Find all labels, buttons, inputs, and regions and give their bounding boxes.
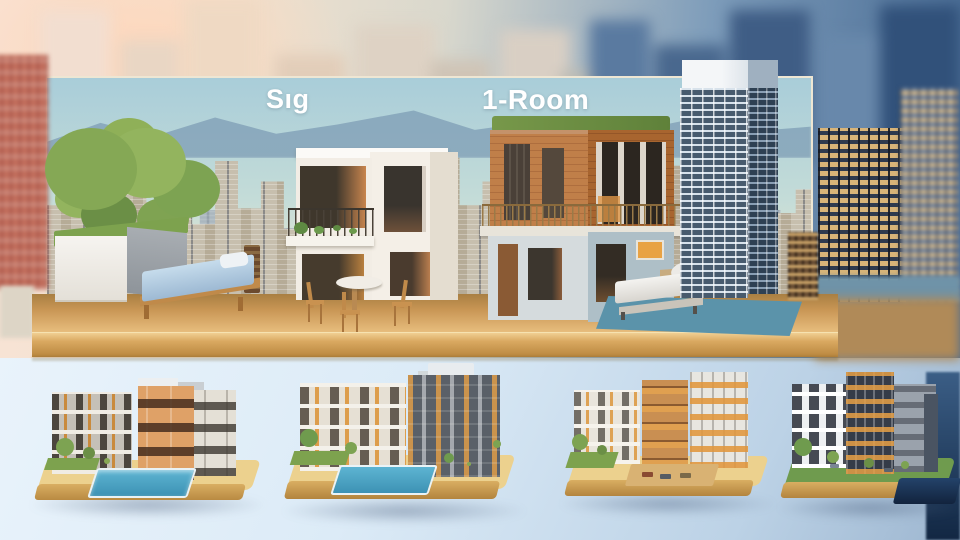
chair-leg	[308, 304, 310, 322]
apartment-model-2	[280, 365, 525, 520]
label-1-room: 1-Room	[482, 84, 589, 116]
lower-window-left	[528, 248, 562, 300]
tower-cap-side	[748, 60, 778, 90]
apartment-model-3	[558, 368, 776, 516]
apartment-model-1	[34, 372, 266, 518]
house-upper-window	[384, 166, 426, 232]
courtyard	[625, 464, 719, 486]
cafe-table-set-model	[300, 268, 440, 334]
chair-leg	[320, 304, 322, 324]
single-bed-model	[138, 243, 268, 321]
apartment-model-4	[778, 368, 960, 520]
tower-glass-front	[680, 88, 748, 298]
tree-foliage	[45, 128, 137, 210]
left-floor-strip	[0, 286, 34, 338]
label-sig: Sıg	[266, 84, 310, 115]
trees	[56, 438, 74, 456]
chair-leg	[356, 314, 358, 332]
trees	[572, 434, 588, 450]
tower-cap-front	[682, 60, 748, 90]
dark-service-band	[924, 394, 938, 472]
right-building-lit	[690, 372, 748, 468]
balcony-floor-slab	[286, 236, 374, 246]
wooden-door	[498, 244, 518, 316]
chair-leg	[394, 306, 396, 326]
platform-front-edge	[32, 332, 838, 357]
right-building-dark	[408, 375, 500, 477]
daybed-leg	[693, 306, 697, 314]
right-building-front	[138, 386, 194, 480]
lawn-strip	[565, 452, 618, 468]
trees	[794, 438, 812, 456]
bronze-lattice-screen	[788, 232, 818, 300]
bed-leg	[144, 305, 149, 319]
planter-front-face	[55, 236, 127, 302]
bed-leg	[238, 297, 243, 311]
lawn-strip	[290, 451, 351, 465]
gold-window-tower-far	[900, 88, 958, 302]
glass-tower-model	[680, 60, 780, 298]
illustration-canvas: Sıg 1-Room	[0, 0, 960, 540]
balcony-plants	[294, 222, 308, 234]
base-front-dark	[893, 478, 960, 504]
platform-bottom-shadow	[32, 356, 838, 361]
glass-mid-building	[846, 372, 894, 474]
table-top	[336, 276, 382, 289]
daybed-leg	[621, 312, 625, 320]
tower-glass-side	[748, 88, 778, 294]
lawn-strip	[44, 458, 100, 470]
chair-leg	[342, 314, 344, 332]
right-building-side	[194, 390, 236, 476]
parked-cars	[642, 472, 653, 477]
middle-tan-tower	[642, 380, 688, 466]
pool	[87, 468, 197, 498]
chair-leg	[408, 306, 410, 324]
trees	[300, 429, 318, 447]
lit-window	[636, 240, 664, 260]
parked-cars	[830, 464, 839, 468]
pool	[330, 465, 438, 495]
